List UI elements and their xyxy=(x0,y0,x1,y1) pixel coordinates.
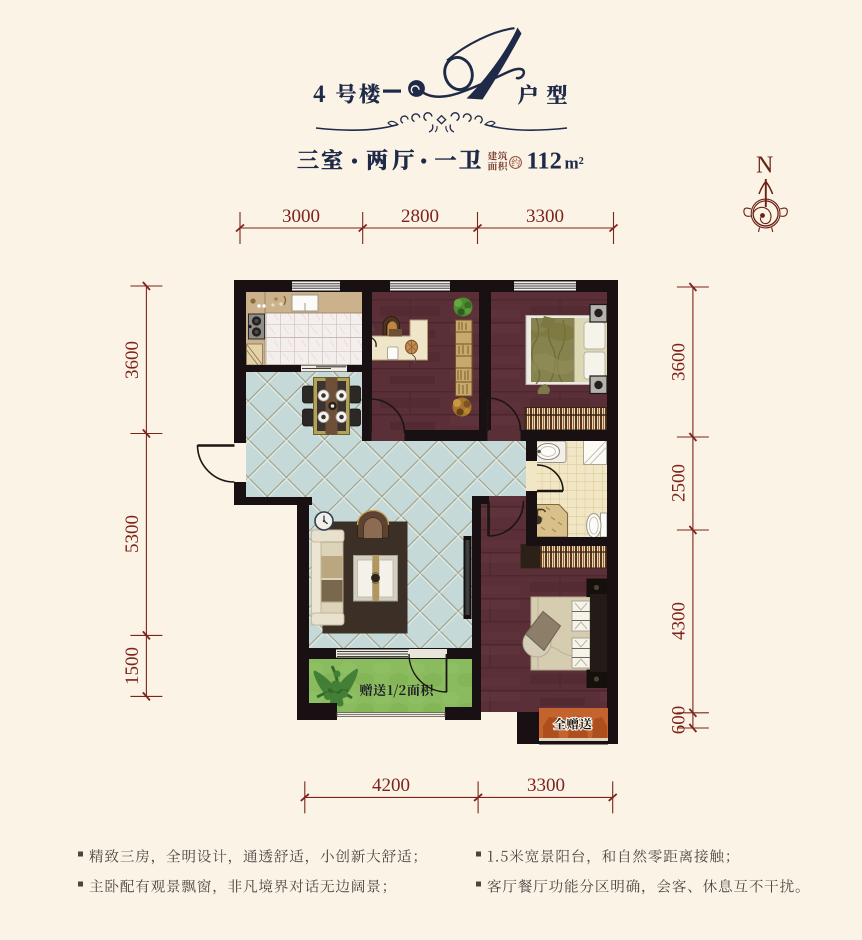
svg-text:5300: 5300 xyxy=(122,515,143,553)
svg-text:3000: 3000 xyxy=(282,206,320,227)
svg-text:600: 600 xyxy=(669,706,690,735)
svg-text:2500: 2500 xyxy=(669,464,690,502)
svg-text:3600: 3600 xyxy=(122,341,143,379)
svg-text:3600: 3600 xyxy=(669,343,690,381)
svg-text:4300: 4300 xyxy=(669,602,690,640)
svg-text:3300: 3300 xyxy=(526,206,564,227)
svg-text:3300: 3300 xyxy=(527,775,565,796)
svg-text:2800: 2800 xyxy=(401,206,439,227)
svg-text:4200: 4200 xyxy=(372,775,410,796)
svg-text:1500: 1500 xyxy=(122,647,143,685)
svg-text:m²: m² xyxy=(565,154,584,173)
svg-text:N: N xyxy=(756,153,773,179)
svg-text:112: 112 xyxy=(527,148,562,175)
